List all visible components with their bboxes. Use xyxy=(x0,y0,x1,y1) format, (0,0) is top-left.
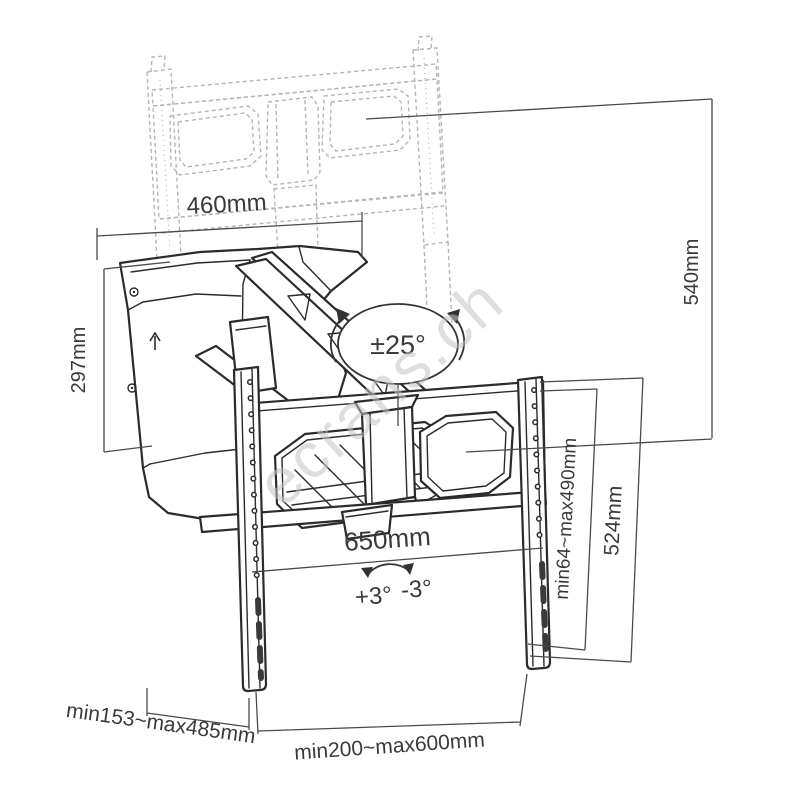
ghost-right-rail xyxy=(413,48,448,245)
dim-wall-distance-label: min153~max485mm xyxy=(65,699,257,748)
dim-vesa-horizontal-label: min200~max600mm xyxy=(294,728,486,764)
dim-tilt-plus-label: +3° xyxy=(354,582,393,612)
tilt-arrow-left xyxy=(361,567,373,578)
dim-vesa-horizontal: min200~max600mm xyxy=(256,674,527,765)
right-rail-slots xyxy=(542,564,546,656)
dim-plate-width-label: 460mm xyxy=(186,189,267,220)
dim-tilt-minus-label: -3° xyxy=(400,575,433,604)
ghost-top-cap xyxy=(152,64,437,106)
diagram-canvas: 460mm 540mm 297mm ±25° 650mm xyxy=(0,0,800,800)
dim-vesa-vertical-label: min64~max490mm xyxy=(552,437,581,600)
dim-wall-distance: min153~max485mm xyxy=(65,688,257,748)
dim-tilt: +3° -3° xyxy=(354,563,433,611)
tv-mount-diagram: 460mm 540mm 297mm ±25° 650mm xyxy=(0,0,800,800)
dim-drop-height-label: 540mm xyxy=(681,239,703,306)
dim-bracket-width-label: 650mm xyxy=(343,521,432,557)
tilt-arrow-right xyxy=(403,563,414,575)
dim-plate-height-label: 297mm xyxy=(68,327,90,394)
ghost-column xyxy=(266,97,320,185)
dim-rail-height-label: 524mm xyxy=(600,485,627,556)
